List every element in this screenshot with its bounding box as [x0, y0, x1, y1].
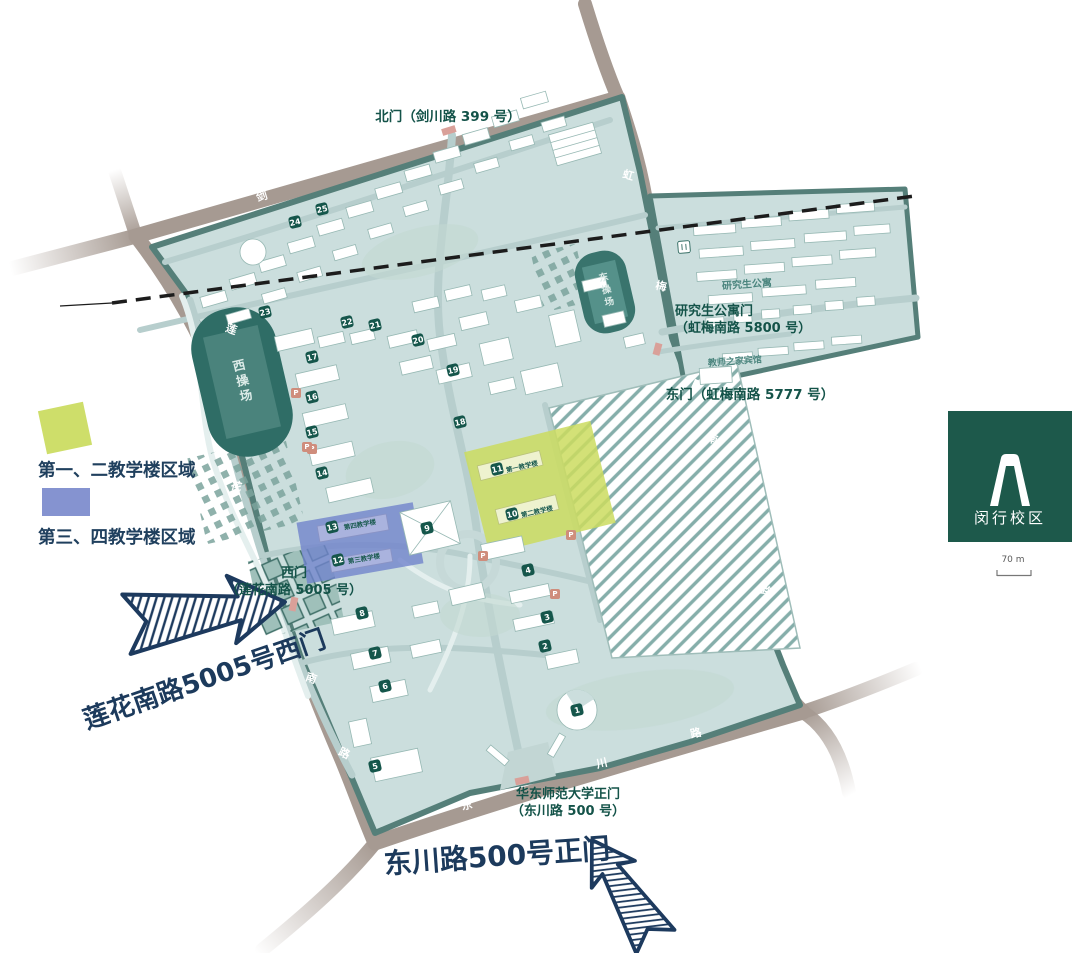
road-north-stub: [115, 172, 136, 236]
legend-swatch-first-second: [38, 402, 92, 455]
legend-swatch-third-fourth: [42, 488, 90, 516]
main-gate-arrow: [570, 826, 677, 953]
road-jianchuan-west-fade: [14, 236, 136, 268]
road-vertical-top: [585, 4, 618, 98]
round-plaza-building: [557, 690, 597, 730]
road-south-fade: [803, 712, 849, 792]
canteen-icon: [678, 241, 691, 254]
scale-bar: [997, 570, 1031, 576]
campus-name-label: 闵行校区: [974, 507, 1046, 528]
legend-label-third-fourth: 第三、四教学楼区域: [38, 524, 196, 549]
road-lianhua-south-fade: [262, 843, 375, 950]
campus-map-page: 第一、二教学楼区域 第三、四教学楼区域 闵行校区 北门（剑川路 399 号）西门…: [0, 0, 1080, 953]
campus-logo-card: 闵行校区: [948, 411, 1072, 542]
gate-arch-icon: [982, 451, 1038, 509]
road-dongchuan-east-fade: [803, 669, 916, 712]
legend-label-first-second: 第一、二教学楼区域: [38, 457, 196, 482]
